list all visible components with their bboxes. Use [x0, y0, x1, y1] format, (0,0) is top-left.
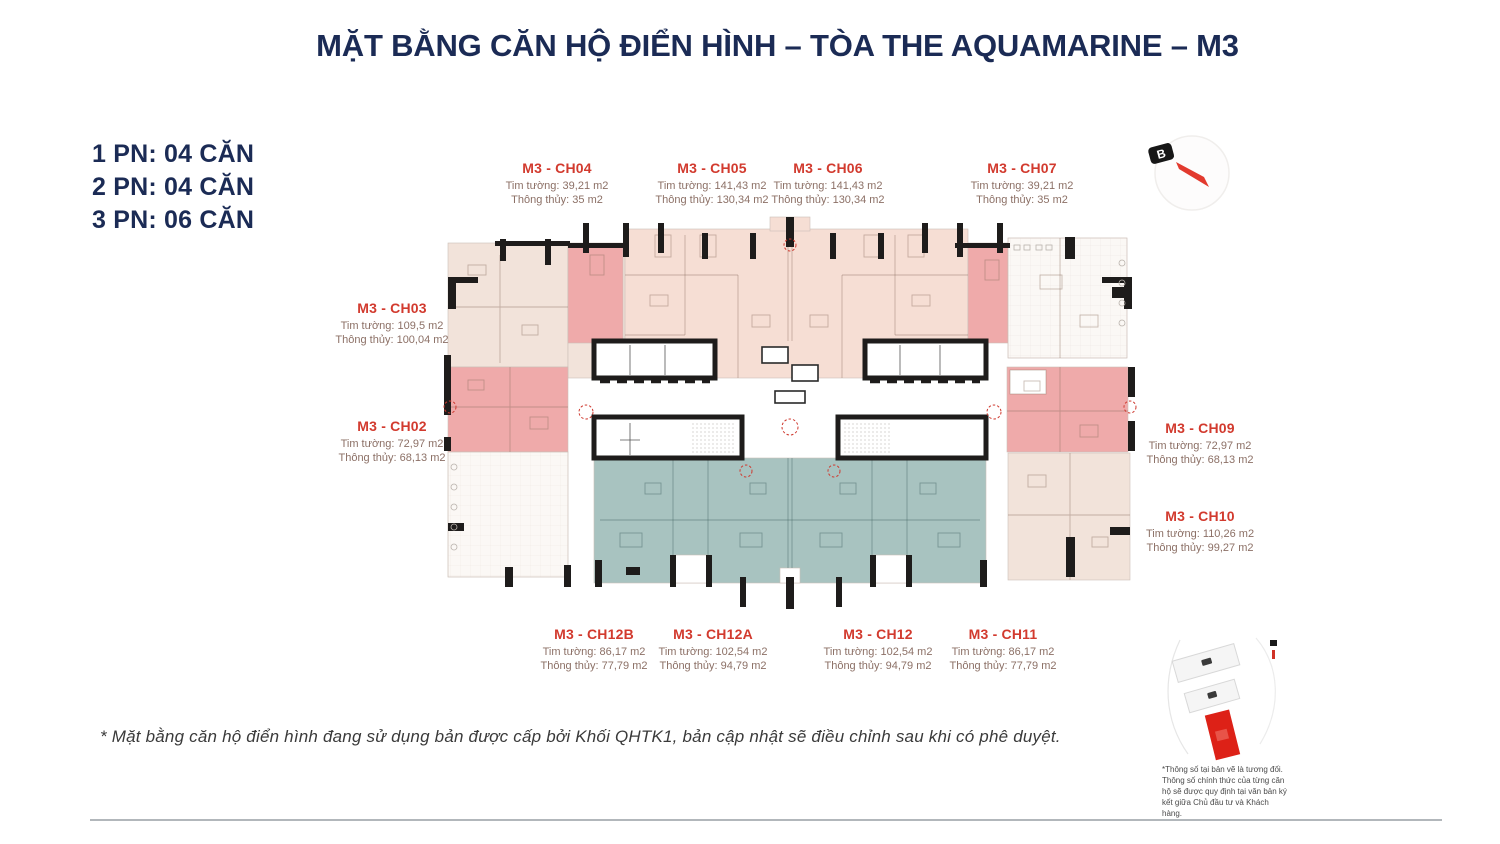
footnote: * Mặt bằng căn hộ điển hình đang sử dụng…: [100, 727, 1100, 747]
minimap-legend-tick: [1272, 650, 1275, 659]
core-upper-right: [865, 341, 986, 378]
minimap-building-m3-highlight: [1205, 710, 1240, 761]
minimap-building-m1: [1172, 644, 1240, 683]
bedroom-count-legend: 1 PN: 04 CĂN 2 PN: 04 CĂN 3 PN: 06 CĂN: [92, 138, 254, 237]
unit-label-ch12a: M3 - CH12A Tim tường: 102,54 m2 Thông th…: [628, 626, 798, 673]
unit-label-ch03: M3 - CH03 Tim tường: 109,5 m2 Thông thủy…: [307, 300, 477, 347]
floorplan-drawing: [440, 215, 1140, 620]
lobby-floor-pattern-left: [690, 423, 736, 453]
unit-label-ch10: M3 - CH10 Tim tường: 110,26 m2 Thông thủ…: [1115, 508, 1285, 555]
bottom-divider: [90, 819, 1442, 821]
region-ch12-units: [594, 458, 986, 583]
minimap-building-m2: [1184, 679, 1239, 713]
lobby-floor-pattern-right: [844, 423, 890, 453]
compass-north-icon: B: [1140, 120, 1250, 230]
region-ch07-strip: [968, 243, 1008, 343]
unit-label-ch07: M3 - CH07 Tim tường: 39,21 m2 Thông thủy…: [937, 160, 1107, 207]
minimap-note: *Thông số tại bản vẽ là tương đối. Thông…: [1162, 764, 1290, 819]
site-minimap: *Thông số tại bản vẽ là tương đối. Thông…: [1158, 636, 1294, 818]
unit-label-ch02: M3 - CH02 Tim tường: 72,97 m2 Thông thủy…: [307, 418, 477, 465]
legend-item-2pn: 2 PN: 04 CĂN: [92, 171, 254, 204]
core-upper-left: [594, 341, 715, 378]
minimap-legend-square: [1270, 640, 1277, 646]
legend-item-1pn: 1 PN: 04 CĂN: [92, 138, 254, 171]
unit-label-ch04: M3 - CH04 Tim tường: 39,21 m2 Thông thủy…: [472, 160, 642, 207]
unit-label-ch11: M3 - CH11 Tim tường: 86,17 m2 Thông thủy…: [918, 626, 1088, 673]
region-ch04: [568, 245, 623, 343]
unit-label-ch06: M3 - CH06 Tim tường: 141,43 m2 Thông thủ…: [743, 160, 913, 207]
unit-label-ch09: M3 - CH09 Tim tường: 72,97 m2 Thông thủy…: [1115, 420, 1285, 467]
legend-item-3pn: 3 PN: 06 CĂN: [92, 204, 254, 237]
floorplan-page: MẶT BẰNG CĂN HỘ ĐIỂN HÌNH – TÒA THE AQUA…: [0, 0, 1500, 844]
page-title: MẶT BẰNG CĂN HỘ ĐIỂN HÌNH – TÒA THE AQUA…: [0, 28, 1500, 64]
